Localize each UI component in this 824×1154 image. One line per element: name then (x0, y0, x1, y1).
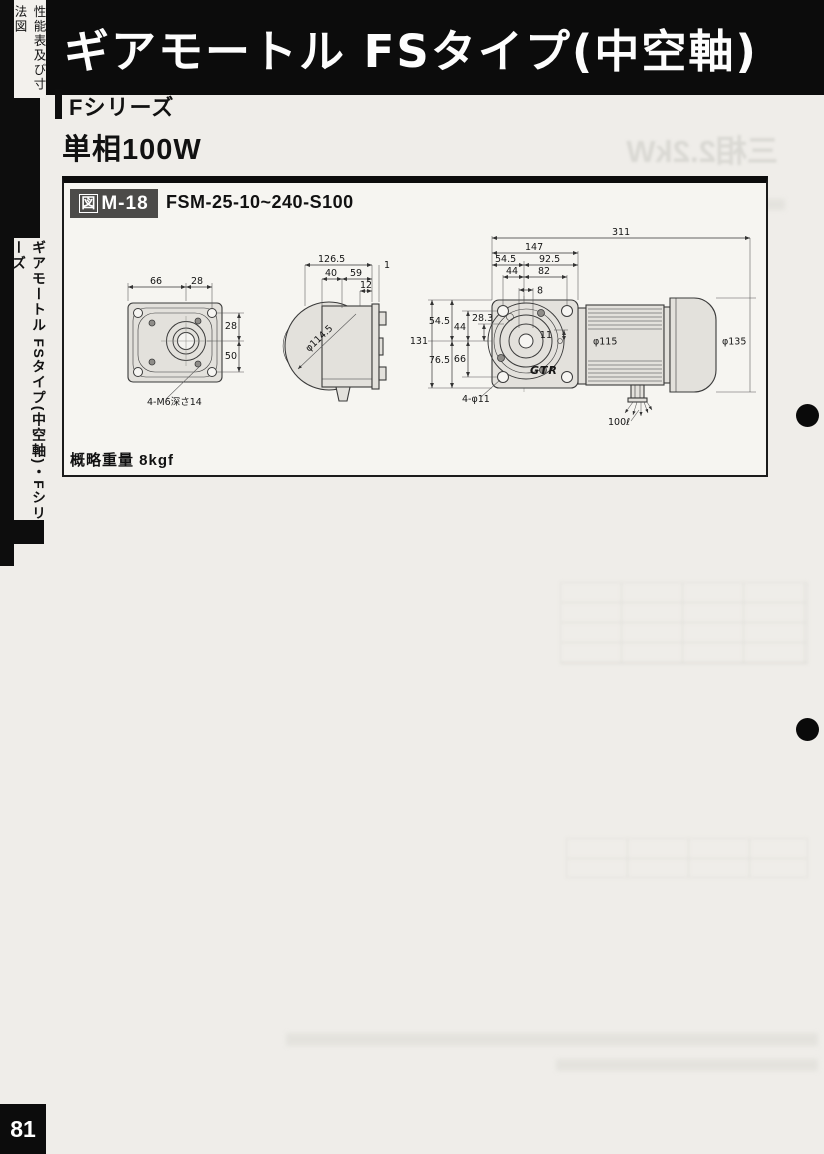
power-heading: 単相100W (62, 126, 202, 168)
side-vertical-label: ギアモートル FSタイプ(中空軸)・Fシリーズ (13, 240, 45, 524)
dim-label: 4-φ11 (462, 394, 490, 405)
figure-model: FSM-25-10~240-S100 (166, 192, 354, 213)
dim-label: 40 (325, 268, 337, 279)
dim-label: 50 (225, 351, 237, 362)
dim-label: 76.5 (429, 355, 450, 366)
page-header: ギアモートル FSタイプ(中空軸) (46, 0, 824, 95)
dim-label: 54.5 (429, 316, 450, 327)
index-tab (0, 520, 44, 544)
binding-dot (796, 404, 819, 427)
dim-label: 1 (384, 260, 390, 271)
top-edge-tab-label: 性能表及び寸法図 (11, 5, 49, 98)
dim-label: 92.5 (539, 254, 560, 265)
figure-tag: 図 M-18 (70, 189, 158, 218)
front-view: 66 28 28 50 4-M6深さ14 (128, 276, 244, 408)
figure-weight-note: 概略重量 8kgf (70, 449, 174, 470)
side-view: 126.5 1 40 59 12 φ114.5 (283, 254, 390, 401)
dim-label: 82 (538, 266, 550, 277)
series-accent-bar (55, 89, 62, 119)
dim-label: 147 (525, 242, 543, 253)
dim-label: 126.5 (318, 254, 345, 265)
page-title: ギアモートル FSタイプ(中空軸) (64, 15, 758, 80)
showthrough-line (556, 1059, 818, 1071)
dim-label: 131 (410, 336, 428, 347)
dim-label: 100ℓ (608, 417, 630, 428)
dim-label: 44 (454, 322, 466, 333)
side-vertical-label-text: ギアモートル FSタイプ(中空軸)・Fシリーズ (9, 240, 49, 524)
showthrough-line (286, 1033, 818, 1046)
dim-label: 11 (540, 330, 552, 341)
dim-label: 66 (150, 276, 162, 287)
series-heading: Fシリーズ (69, 90, 174, 122)
showthrough-table (566, 838, 808, 878)
dim-note: 4-M6深さ14 (147, 397, 202, 408)
dim-label: 28 (225, 321, 237, 332)
dim-label: 28.3 (472, 313, 493, 324)
figure-tag-code: M-18 (101, 193, 148, 215)
binding-dot (796, 718, 819, 741)
dim-label: 28 (191, 276, 203, 287)
dim-label: 8 (537, 286, 543, 297)
dim-label: φ135 (722, 337, 746, 348)
page-number: 81 (0, 1104, 46, 1154)
showthrough-title: 三相2.2kW (612, 126, 792, 171)
fan-cover (670, 298, 716, 392)
dim-label: 12 (360, 280, 372, 291)
brand-logo: GTR (530, 364, 558, 377)
assembly-view: GTR φ115 φ135 (410, 227, 756, 428)
figure-tag-prefix: 図 (79, 194, 98, 214)
cable-wires (625, 402, 652, 416)
technical-drawing: 66 28 28 50 4-M6深さ14 (64, 216, 766, 451)
catalog-page: 性能表及び寸法図 ギアモートル FSタイプ(中空軸)・Fシリーズ 81 ギアモー… (0, 0, 824, 1154)
dim-label: 311 (612, 227, 630, 238)
dim-label: 44 (506, 266, 518, 277)
showthrough-table (560, 582, 808, 664)
figure-box: 図 M-18 FSM-25-10~240-S100 概略重量 8kgf (62, 176, 768, 477)
left-edge-block (0, 95, 40, 238)
top-edge-tab: 性能表及び寸法図 (14, 0, 45, 98)
dim-label: 66 (454, 354, 466, 365)
dim-label: 59 (350, 268, 362, 279)
dim-label: φ115 (593, 337, 617, 348)
dim-label: 54.5 (495, 254, 516, 265)
